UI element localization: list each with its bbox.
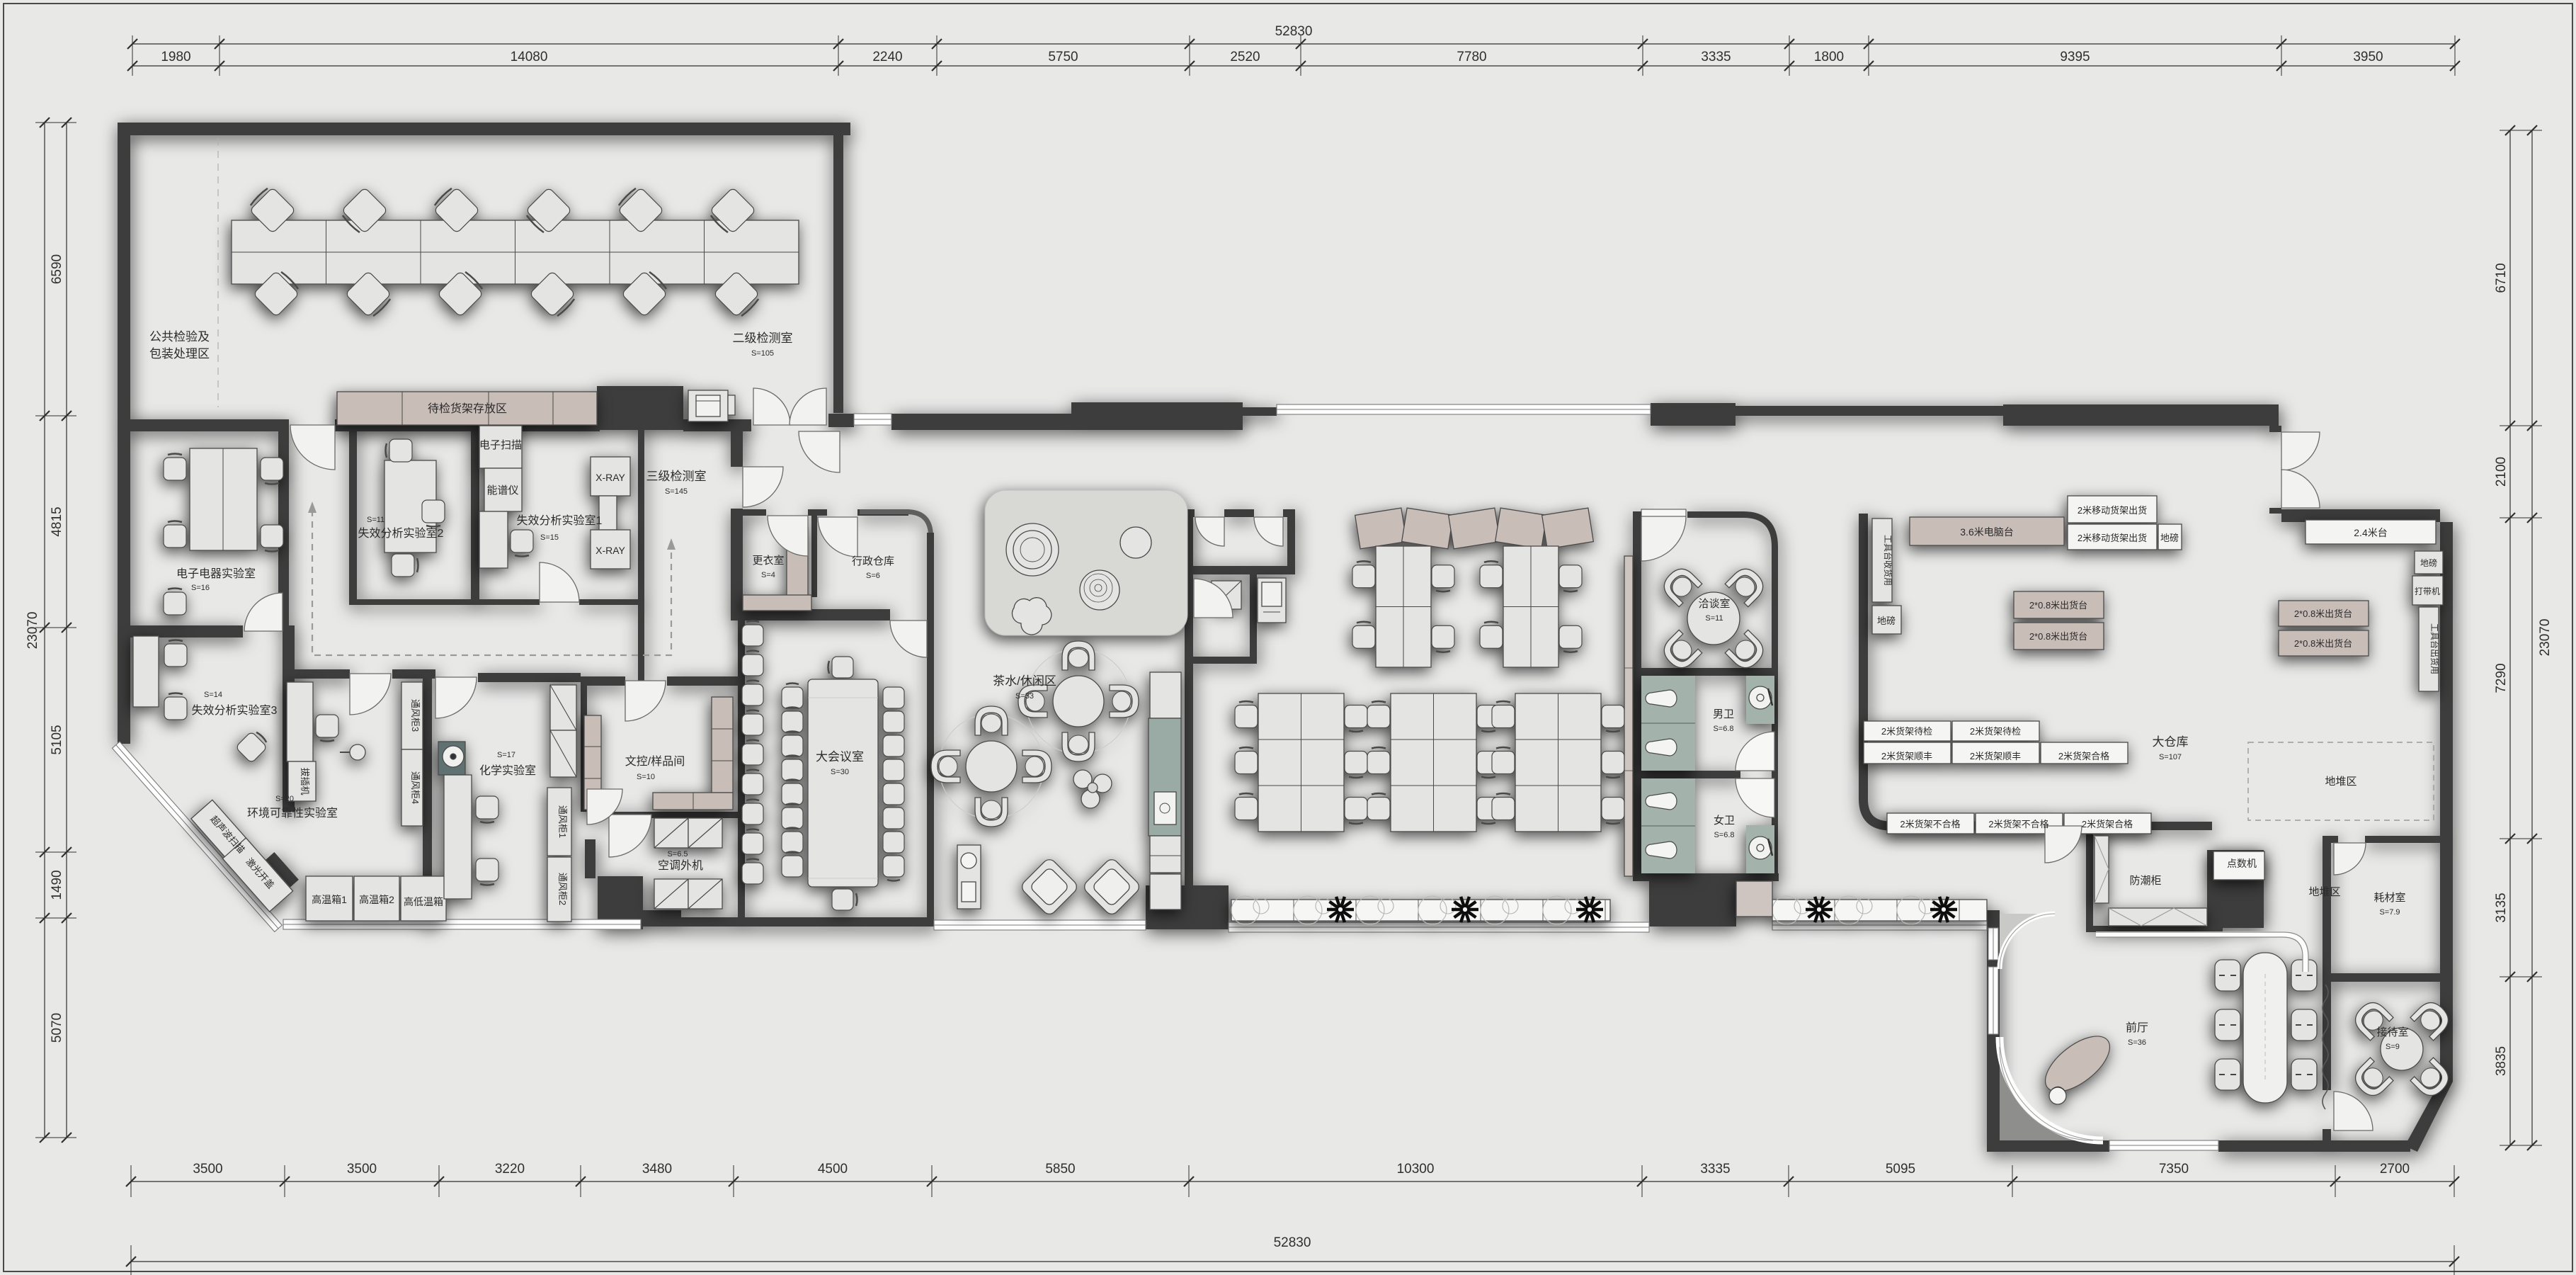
svg-text:S=16: S=16: [191, 584, 210, 592]
svg-text:S=7.9: S=7.9: [2379, 908, 2400, 917]
svg-text:通风柜2: 通风柜2: [557, 873, 568, 905]
svg-text:2240: 2240: [872, 50, 902, 64]
svg-text:通风柜1: 通风柜1: [557, 805, 568, 838]
svg-text:地磅: 地磅: [2420, 557, 2437, 568]
svg-text:S=145: S=145: [665, 487, 688, 496]
svg-text:5095: 5095: [1886, 1162, 1915, 1177]
svg-text:失效分析实验室1: 失效分析实验室1: [517, 514, 603, 527]
svg-text:三级检测室: 三级检测室: [646, 470, 707, 483]
svg-text:S=14: S=14: [204, 691, 222, 699]
svg-text:高温箱1: 高温箱1: [312, 894, 347, 905]
svg-text:6590: 6590: [50, 254, 64, 284]
svg-text:S=53: S=53: [1015, 692, 1034, 701]
svg-text:地堆区: 地堆区: [2308, 886, 2340, 898]
svg-text:拔插机: 拔插机: [300, 767, 310, 795]
svg-text:3500: 3500: [347, 1162, 377, 1177]
svg-text:电子扫描: 电子扫描: [479, 439, 522, 451]
svg-text:S=11: S=11: [1705, 614, 1723, 623]
svg-text:洽谈室: 洽谈室: [1698, 598, 1730, 610]
svg-text:2520: 2520: [1230, 50, 1260, 64]
svg-text:10300: 10300: [1397, 1162, 1435, 1177]
svg-text:2*0.8米出货台: 2*0.8米出货台: [2029, 631, 2087, 642]
svg-text:2米货架顺丰: 2米货架顺丰: [1881, 751, 1932, 761]
svg-text:S=15: S=15: [540, 533, 559, 542]
svg-text:S=17: S=17: [497, 751, 515, 759]
svg-text:通风柜4: 通风柜4: [410, 771, 421, 804]
svg-text:2米货架顺丰: 2米货架顺丰: [1970, 751, 2021, 761]
svg-text:化学实验室: 化学实验室: [479, 764, 536, 777]
svg-text:S=9: S=9: [2386, 1043, 2400, 1051]
svg-text:失效分析实验室2: 失效分析实验室2: [358, 527, 444, 540]
svg-text:文控/样品间: 文控/样品间: [625, 755, 685, 768]
svg-text:茶水/休闲区: 茶水/休闲区: [993, 674, 1056, 688]
svg-text:X-RAY: X-RAY: [595, 545, 625, 556]
svg-text:防潮柜: 防潮柜: [2129, 875, 2161, 887]
svg-text:电子电器实验室: 电子电器实验室: [176, 567, 256, 580]
svg-text:3500: 3500: [193, 1162, 222, 1177]
svg-text:失效分析实验室3: 失效分析实验室3: [192, 704, 278, 717]
svg-text:S=6.5: S=6.5: [667, 850, 688, 858]
svg-text:打带机: 打带机: [2415, 586, 2440, 596]
svg-text:2100: 2100: [2494, 457, 2509, 487]
svg-text:2米货架待检: 2米货架待检: [1881, 726, 1932, 737]
svg-text:5850: 5850: [1045, 1162, 1075, 1177]
svg-text:3135: 3135: [2494, 892, 2509, 922]
svg-text:通风柜3: 通风柜3: [410, 699, 421, 732]
svg-text:1800: 1800: [1814, 50, 1844, 64]
svg-text:4500: 4500: [818, 1162, 848, 1177]
svg-text:7350: 7350: [2159, 1162, 2189, 1177]
svg-text:大仓库: 大仓库: [2153, 735, 2189, 749]
svg-text:行政仓库: 行政仓库: [852, 555, 894, 567]
svg-text:14080: 14080: [511, 50, 548, 64]
svg-text:3.6米电脑台: 3.6米电脑台: [1960, 526, 2013, 538]
svg-text:地堆区: 地堆区: [2325, 776, 2356, 788]
svg-text:23070: 23070: [25, 612, 40, 650]
svg-text:公共检验及: 公共检验及: [149, 330, 210, 344]
svg-text:包装处理区: 包装处理区: [149, 347, 210, 361]
svg-text:S=4: S=4: [761, 571, 775, 579]
svg-text:1980: 1980: [161, 50, 190, 64]
svg-text:52830: 52830: [1274, 1235, 1311, 1250]
svg-text:能谱仪: 能谱仪: [486, 484, 518, 497]
svg-text:3220: 3220: [495, 1162, 525, 1177]
svg-text:6710: 6710: [2494, 263, 2509, 293]
svg-text:23070: 23070: [2538, 619, 2553, 657]
svg-text:接待室: 接待室: [2376, 1026, 2408, 1038]
svg-text:大会议室: 大会议室: [816, 750, 864, 764]
svg-text:2米移动货架出货: 2米移动货架出货: [2078, 505, 2147, 516]
svg-text:2*0.8米出货台: 2*0.8米出货台: [2294, 608, 2352, 619]
svg-text:7290: 7290: [2494, 663, 2509, 693]
svg-text:5070: 5070: [50, 1013, 64, 1043]
svg-text:2*0.8米出货台: 2*0.8米出货台: [2294, 638, 2352, 649]
svg-text:更衣室: 更衣室: [752, 555, 784, 567]
svg-text:S=20: S=20: [275, 795, 294, 803]
svg-text:2.4米台: 2.4米台: [2354, 527, 2387, 538]
svg-text:52830: 52830: [1275, 24, 1313, 39]
svg-text:2700: 2700: [2380, 1162, 2410, 1177]
svg-text:S=10: S=10: [637, 773, 655, 781]
svg-text:工具台收货用: 工具台收货用: [1883, 535, 1893, 586]
svg-text:男卫: 男卫: [1713, 708, 1734, 720]
svg-text:S=11: S=11: [367, 516, 384, 524]
svg-text:3480: 3480: [642, 1162, 672, 1177]
svg-text:2米货架不合格: 2米货架不合格: [1988, 819, 2048, 829]
svg-text:耗材室: 耗材室: [2373, 892, 2405, 904]
svg-text:2*0.8米出货台: 2*0.8米出货台: [2029, 600, 2087, 611]
svg-text:2米货架待检: 2米货架待检: [1970, 726, 2021, 737]
svg-text:高低温箱: 高低温箱: [404, 896, 443, 907]
svg-text:5750: 5750: [1048, 50, 1078, 64]
svg-text:2米移动货架出货: 2米移动货架出货: [2078, 533, 2147, 543]
svg-text:2米货架合格: 2米货架合格: [2058, 751, 2109, 761]
svg-text:点数机: 点数机: [2227, 858, 2257, 869]
svg-text:3950: 3950: [2353, 50, 2383, 64]
svg-text:S=107: S=107: [2159, 753, 2182, 761]
svg-text:3335: 3335: [1701, 50, 1731, 64]
svg-text:环境可靠性实验室: 环境可靠性实验室: [247, 806, 338, 820]
svg-text:9395: 9395: [2060, 50, 2090, 64]
svg-text:X-RAY: X-RAY: [595, 472, 625, 483]
svg-text:工具台出货用: 工具台出货用: [2429, 623, 2440, 674]
svg-text:7780: 7780: [1457, 50, 1486, 64]
svg-text:S=30: S=30: [831, 768, 849, 776]
svg-text:S=6.8: S=6.8: [1714, 831, 1734, 839]
svg-text:5105: 5105: [50, 725, 64, 754]
svg-text:2米货架不合格: 2米货架不合格: [1900, 819, 1960, 829]
svg-text:2米货架合格: 2米货架合格: [2082, 819, 2133, 829]
svg-text:S=6.8: S=6.8: [1713, 725, 1733, 733]
svg-text:S=105: S=105: [751, 349, 774, 358]
svg-text:地磅: 地磅: [2160, 533, 2179, 543]
svg-text:S=36: S=36: [2128, 1038, 2146, 1047]
svg-text:待检货架存放区: 待检货架存放区: [428, 402, 507, 415]
svg-text:地磅: 地磅: [1877, 616, 1896, 626]
svg-text:二级检测室: 二级检测室: [733, 331, 793, 345]
svg-text:女卫: 女卫: [1714, 814, 1735, 827]
svg-text:空调外机: 空调外机: [658, 859, 703, 872]
svg-text:3835: 3835: [2494, 1046, 2509, 1076]
svg-text:前厅: 前厅: [2126, 1021, 2148, 1034]
svg-text:1490: 1490: [50, 870, 64, 900]
svg-text:S=6: S=6: [866, 572, 880, 580]
svg-text:4815: 4815: [50, 506, 64, 536]
svg-text:高温箱2: 高温箱2: [359, 894, 394, 905]
svg-text:3335: 3335: [1700, 1162, 1730, 1177]
